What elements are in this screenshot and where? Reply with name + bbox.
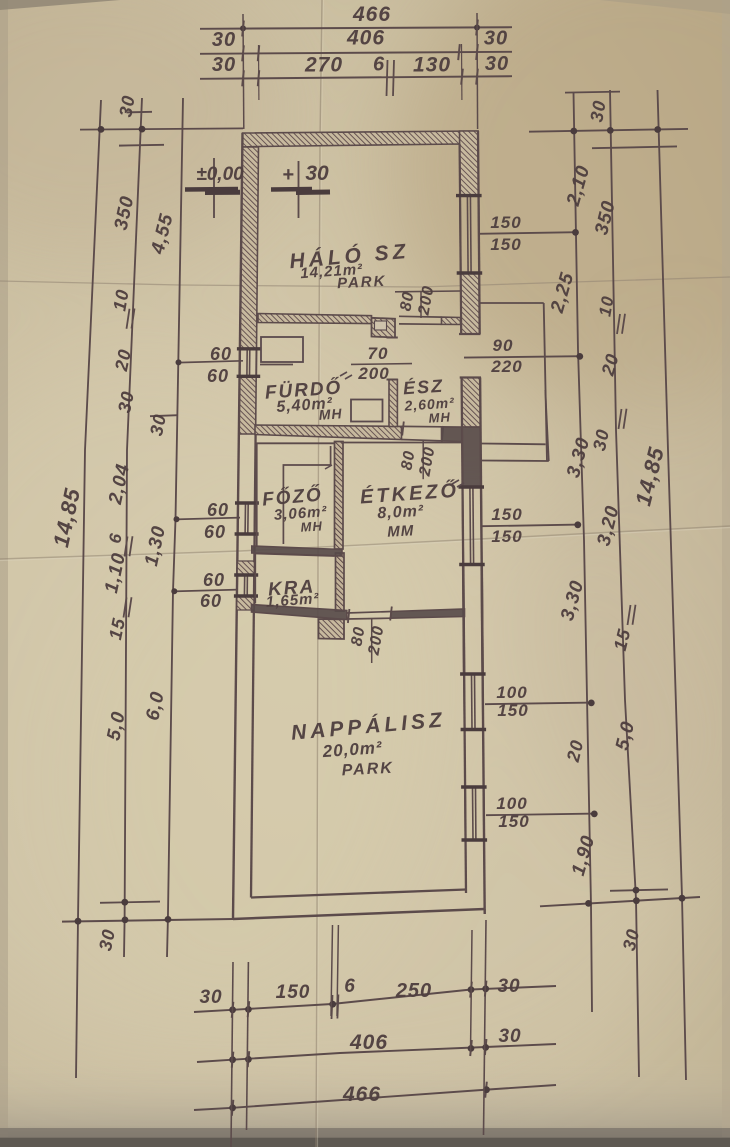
svg-text:270: 270 <box>304 54 343 77</box>
svg-text:MH: MH <box>300 518 323 535</box>
svg-text:150: 150 <box>497 701 528 720</box>
svg-text:30: 30 <box>212 29 236 51</box>
svg-text:150: 150 <box>491 505 522 524</box>
svg-text:150: 150 <box>498 812 529 831</box>
svg-text:30: 30 <box>485 53 509 75</box>
svg-text:150: 150 <box>490 235 521 254</box>
svg-text:150: 150 <box>491 527 522 546</box>
svg-text:30: 30 <box>212 54 236 76</box>
svg-text:6: 6 <box>373 54 385 76</box>
svg-text:80: 80 <box>398 449 418 471</box>
svg-text:30: 30 <box>586 98 610 123</box>
svg-text:100: 100 <box>496 683 527 702</box>
svg-text:100: 100 <box>496 794 527 813</box>
svg-text:MH: MH <box>428 409 451 426</box>
svg-text:70: 70 <box>368 344 389 363</box>
svg-text:80: 80 <box>348 625 368 647</box>
svg-text:406: 406 <box>346 27 385 50</box>
svg-text:90: 90 <box>493 336 514 355</box>
svg-text:+: + <box>282 164 294 186</box>
svg-text:PARK: PARK <box>337 273 387 293</box>
svg-text:60: 60 <box>207 366 229 386</box>
svg-text:60: 60 <box>210 344 232 364</box>
svg-text:±0,00: ±0,00 <box>196 164 244 185</box>
svg-text:10: 10 <box>109 287 133 312</box>
svg-text:30: 30 <box>199 987 222 1008</box>
svg-text:130: 130 <box>413 54 451 77</box>
svg-text:250: 250 <box>395 980 432 1002</box>
svg-text:60: 60 <box>200 591 222 611</box>
svg-text:10: 10 <box>595 294 617 318</box>
svg-text:200: 200 <box>357 364 389 383</box>
svg-text:150: 150 <box>490 213 521 232</box>
svg-text:8,0m²: 8,0m² <box>377 503 425 522</box>
svg-text:150: 150 <box>276 982 311 1003</box>
svg-text:PARK: PARK <box>341 760 394 780</box>
svg-text:406: 406 <box>349 1031 388 1054</box>
svg-text:80: 80 <box>397 290 417 312</box>
svg-text:60: 60 <box>203 570 225 590</box>
svg-text:466: 466 <box>352 3 391 26</box>
svg-text:60: 60 <box>207 500 229 520</box>
svg-text:30: 30 <box>484 28 508 50</box>
svg-text:60: 60 <box>204 522 226 542</box>
svg-text:30: 30 <box>497 976 520 997</box>
svg-text:466: 466 <box>342 1083 381 1106</box>
svg-text:MH: MH <box>318 405 343 423</box>
svg-text:30: 30 <box>115 93 139 118</box>
svg-text:6: 6 <box>344 976 356 997</box>
svg-text:220: 220 <box>490 357 522 376</box>
svg-text:MM: MM <box>387 522 415 540</box>
svg-text:30: 30 <box>305 162 329 185</box>
svg-text:30: 30 <box>498 1026 521 1047</box>
